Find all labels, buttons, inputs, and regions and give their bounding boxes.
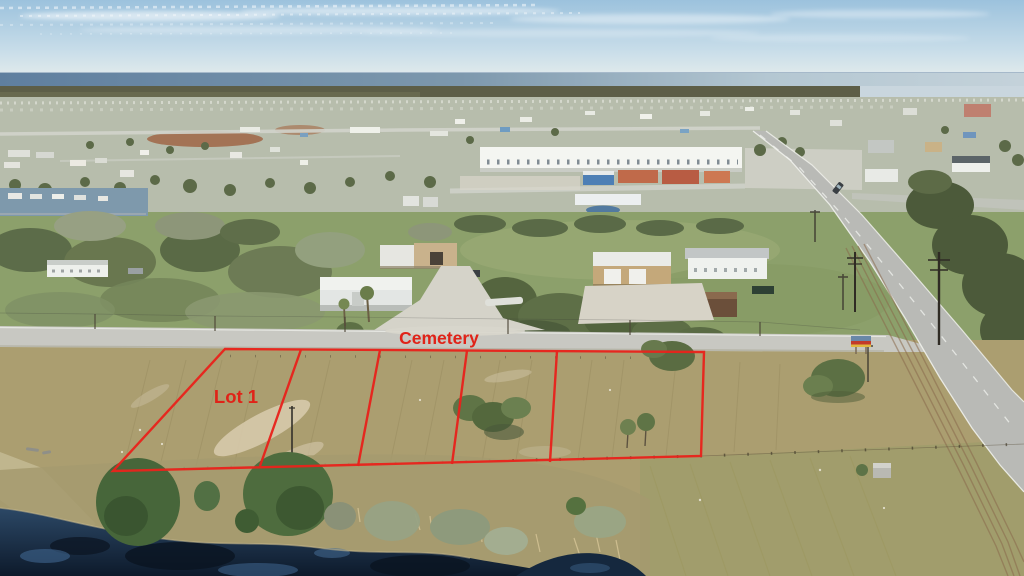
town [0,86,1024,219]
red-roof-building [618,170,658,183]
cemetery-label: Cemetery [399,328,479,348]
aerial-photo: Cemetery Lot 1 [0,0,1024,576]
bottom-bank [0,452,650,576]
aerial-photo-canvas: Cemetery Lot 1 [0,0,1024,576]
green-bush [856,464,868,476]
red-roof-building-2 [662,170,699,184]
green-pickup [752,286,774,294]
tan-barn [593,252,671,288]
parked-car [128,268,143,274]
field-green-tint [640,440,1024,576]
sea-band [0,73,1024,88]
dirt-streak-2 [519,446,571,458]
canal [0,188,148,216]
lot1-label: Lot 1 [214,386,258,407]
small-shed-roof [873,463,891,468]
long-white-building [575,194,641,205]
